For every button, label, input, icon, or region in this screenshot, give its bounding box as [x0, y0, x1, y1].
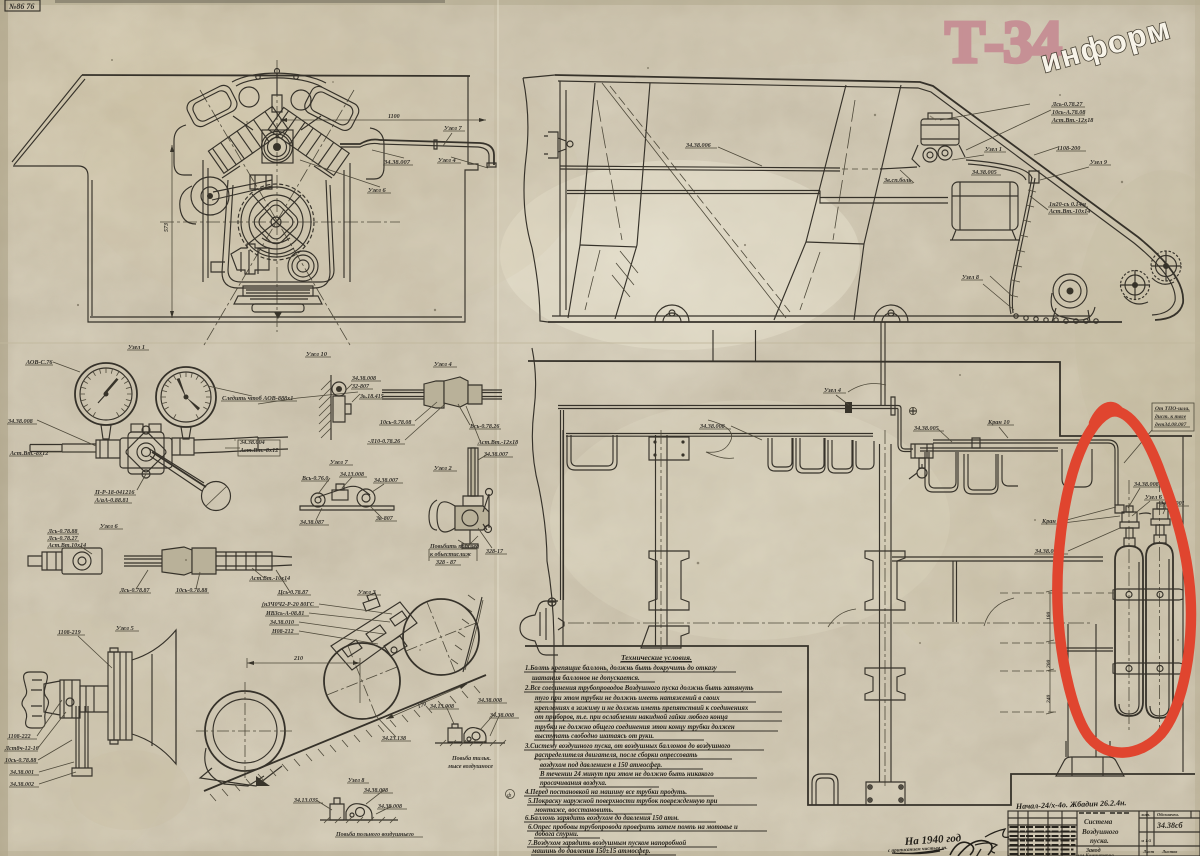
svg-text:Листов: Листов: [1161, 849, 1177, 854]
svg-text:210: 210: [293, 656, 303, 662]
svg-text:мысе воздушносе: мысе воздушносе: [447, 763, 493, 770]
svg-text:3.Систему воздушного пуска, от: 3.Систему воздушного пуска, от воздушных…: [524, 743, 731, 750]
svg-text:машинь до давления 150±15 атмо: машинь до давления 150±15 атмосфер.: [531, 848, 651, 855]
svg-text:6.Опрес пробовы трубопровода п: 6.Опрес пробовы трубопровода проверить з…: [528, 824, 738, 831]
svg-text:пуска.: пуска.: [1090, 837, 1109, 845]
svg-text:5.Покраску наружной поверхност: 5.Покраску наружной поверхности трубок п…: [528, 798, 718, 805]
svg-text:Технические условия.: Технические условия.: [621, 653, 692, 662]
svg-text:монтаже, восстановить.: монтаже, восстановить.: [534, 807, 614, 814]
svg-text:Завод: Завод: [1085, 847, 1101, 854]
svg-text:34.38сб: 34.38сб: [1156, 821, 1183, 830]
svg-text:2.Все соединения трубопроводов: 2.Все соединения трубопроводов Воздушног…: [524, 685, 754, 692]
svg-text:шатания баллонов не допускаетс: шатания баллонов не допускается.: [532, 675, 640, 682]
svg-text:180: 180: [1046, 612, 1052, 621]
svg-text:Аст.Вт.-8х12: Аст.Вт.-8х12: [239, 447, 278, 454]
svg-text:креплениях в зажиму и не должн: креплениях в зажиму и не должнь иметь пр…: [535, 705, 749, 712]
svg-text:1100: 1100: [388, 114, 400, 120]
svg-text:4.Перед постановкой на машину: 4.Перед постановкой на машину все трубки…: [524, 789, 687, 796]
svg-text:воздухом под давлением в 150 а: воздухом под давлением в 150 атмосфер.: [540, 762, 662, 769]
svg-text:1.Болть крепящие баллонь, долж: 1.Болть крепящие баллонь, должнь быть до…: [525, 665, 718, 672]
svg-text:просачивания воздуха.: просачивания воздуха.: [540, 780, 607, 787]
svg-text:от приборов, т.е. при ослаблен: от приборов, т.е. при ослаблении накидно…: [535, 714, 728, 721]
svg-text:м 1:5: м 1:5: [1140, 838, 1152, 843]
svg-text:Воздушного: Воздушного: [1081, 828, 1119, 836]
svg-text:ф: ф: [507, 792, 512, 799]
svg-text:7.Воздухом зарядить воздушным: 7.Воздухом зарядить воздушным пуском нап…: [528, 840, 686, 847]
svg-text:Лист: Лист: [1142, 849, 1155, 854]
svg-text:распределителя двигателя, посл: распределителя двигателя, после сборки о…: [534, 752, 698, 759]
svg-text:добога спурни.: добога спурни.: [535, 831, 579, 838]
svg-text:573: 573: [164, 223, 170, 232]
svg-text:В течении 24 минут при этом не: В течении 24 минут при этом не должно бы…: [539, 771, 714, 778]
svg-text:240: 240: [1046, 695, 1052, 705]
svg-text:Система: Система: [1084, 818, 1113, 826]
svg-text:Повьба тильк.: Повьба тильк.: [451, 755, 491, 762]
svg-text:туго при этом трубки не должнь: туго при этом трубки не должнь иметь нат…: [535, 695, 720, 702]
svg-text:лит.: лит.: [1140, 812, 1151, 817]
svg-text:выступать свободно шатаясь от: выступать свободно шатаясь от руки.: [535, 733, 654, 740]
svg-text:6.Баллонь зарядить воздухом до: 6.Баллонь зарядить воздухом до давления …: [525, 815, 679, 822]
svg-text:Обозначен.: Обозначен.: [1157, 812, 1179, 817]
svg-text:трубки не должно общего соедин: трубки не должно общего соединения этои …: [535, 724, 735, 731]
svg-text:№86 76: №86 76: [9, 2, 34, 11]
svg-text:200: 200: [1046, 660, 1052, 670]
